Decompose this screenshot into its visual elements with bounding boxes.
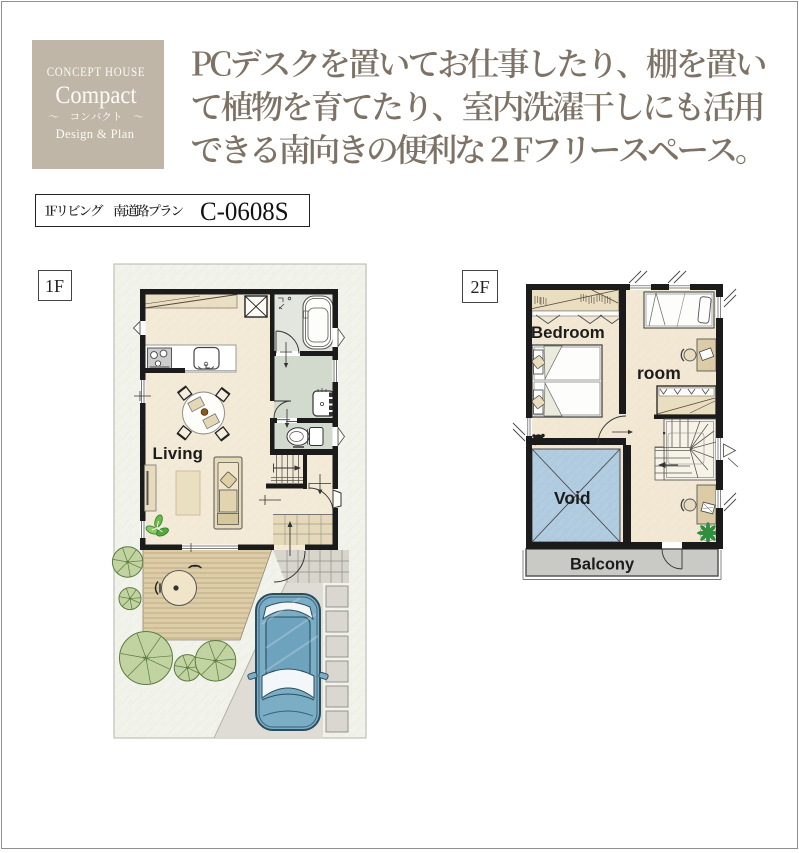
svg-text:Balcony: Balcony: [570, 556, 635, 574]
svg-text:Void: Void: [554, 488, 591, 508]
svg-text:Living: Living: [153, 444, 204, 463]
svg-text:room: room: [637, 363, 681, 383]
svg-text:Bedroom: Bedroom: [531, 323, 605, 342]
